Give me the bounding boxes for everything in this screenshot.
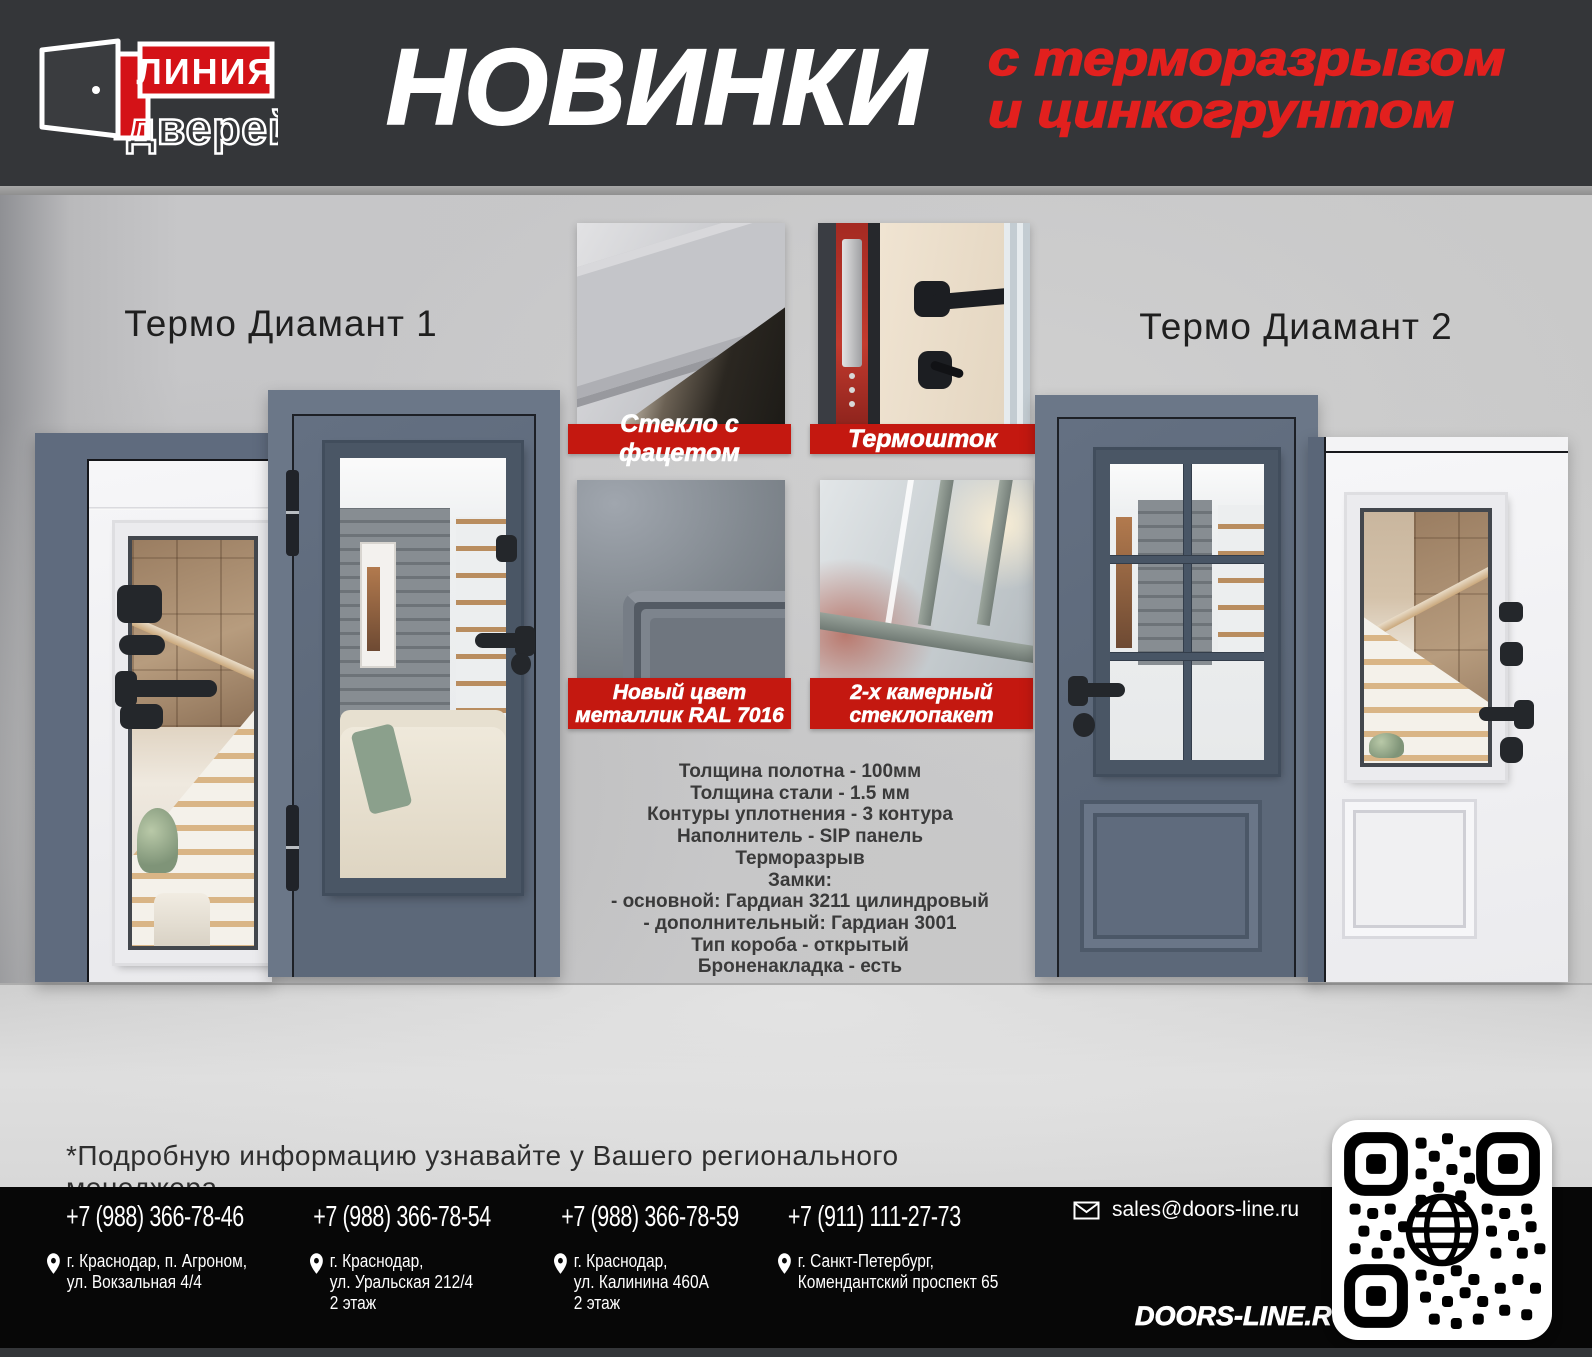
contact-column-2: +7 (988) 366-78-54 г. Краснодар, ул. Ура…	[282, 1201, 522, 1314]
phone-number: +7 (988) 366-78-46	[59, 1201, 251, 1234]
company-logo: ЛИНИЯ дверей	[34, 22, 278, 164]
door-window	[1347, 495, 1505, 780]
door-thumbturn	[1500, 642, 1523, 666]
plant	[1369, 733, 1404, 758]
email-address: sales@doors-line.ru	[1112, 1198, 1299, 1222]
panel-molding-corner	[623, 591, 785, 678]
bottom-strip	[0, 1348, 1592, 1357]
spec-line: Наполнитель - SIP панель	[575, 826, 1025, 848]
poster-title: НОВИНКИ	[386, 24, 1006, 149]
address: г. Санкт-Петербург, Комендантский проспе…	[798, 1251, 999, 1293]
door-edge-panel	[880, 223, 1004, 425]
address-line: ул. Уральская 212/4	[330, 1272, 473, 1293]
open-door-icon: ЛИНИЯ дверей	[34, 22, 278, 164]
globe-icon	[1409, 1197, 1475, 1263]
feature-banner-beveled-glass: Стекло с фацетом	[568, 424, 791, 454]
shelving	[1218, 505, 1264, 659]
door-promo-poster: ЛИНИЯ дверей НОВИНКИ с терморазрывом и ц…	[0, 0, 1592, 1357]
white-door-leaf	[1326, 451, 1568, 982]
address-line: ул. Калинина 460А	[574, 1272, 709, 1293]
door-hinge-top	[286, 470, 299, 556]
location-pin-icon	[778, 1253, 791, 1274]
window-glass-interior	[1110, 464, 1264, 760]
spec-line: Тип короба - открытый	[575, 935, 1025, 957]
address-line: Комендантский проспект 65	[798, 1272, 999, 1293]
feature-photo-thermo-rod	[818, 223, 1030, 425]
banner-text-line2: металлик RAL 7016	[568, 704, 791, 727]
door-handle-rosette	[1514, 700, 1534, 729]
header: ЛИНИЯ дверей НОВИНКИ с терморазрывом и ц…	[0, 0, 1592, 186]
banner-text: Стекло с фацетом	[568, 410, 791, 468]
door-handle-rosette	[515, 626, 535, 656]
specifications-list: Толщина полотна - 100мм Толщина стали - …	[575, 761, 1025, 978]
glazing-bar-1	[918, 480, 957, 626]
feature-photo-beveled-glass	[577, 223, 785, 424]
logo-text-dverey: дверей	[127, 102, 278, 154]
door-jamb	[1308, 437, 1326, 982]
door-handle-rosette	[115, 671, 137, 707]
location-pin-icon	[554, 1253, 567, 1274]
door-thumbturn	[119, 635, 165, 655]
spec-line: Контуры уплотнения - 3 контура	[575, 804, 1025, 826]
door-photo-diamant1-white	[35, 433, 272, 982]
contact-column-4: +7 (911) 111-27-73 г. Санкт-Петербург, К…	[758, 1201, 988, 1293]
door-cylinder	[511, 653, 531, 675]
address-line: ул. Вокзальная 4/4	[67, 1272, 247, 1293]
wall-art-paint	[367, 567, 380, 651]
door-raised-panel	[1080, 800, 1262, 952]
glazing-bar-horizontal-1	[1110, 556, 1264, 563]
logo-text-liniya: ЛИНИЯ	[137, 51, 276, 92]
door-gap	[868, 223, 880, 425]
spec-line: Толщина стали - 1.5 мм	[575, 783, 1025, 805]
spec-line: Толщина полотна - 100мм	[575, 761, 1025, 783]
subtitle-line-1: с терморазрывом	[988, 34, 1505, 86]
address-line: 2 этаж	[330, 1293, 473, 1314]
banner-text-line1: Новый цвет	[568, 681, 791, 704]
door-thumbturn	[496, 535, 517, 562]
window-glass-staircase	[1360, 508, 1492, 767]
phone-number: +7 (988) 366-78-54	[313, 1201, 491, 1234]
website-url: DOORS-LINE.RU	[1135, 1301, 1351, 1332]
banner-text: Термошток	[810, 425, 1035, 454]
banner-text-line2: стеклопакет	[810, 704, 1033, 727]
address: г. Краснодар, ул. Уральская 212/4 2 этаж	[330, 1251, 473, 1314]
door-photo-diamant2-white	[1308, 437, 1568, 982]
hanging-figure	[1116, 517, 1131, 647]
address: г. Краснодар, п. Агроном, ул. Вокзальная…	[67, 1251, 247, 1293]
address-line: г. Краснодар, п. Агроном,	[67, 1251, 247, 1272]
spec-line: - основной: Гардиан 3211 цилиндровый	[575, 891, 1025, 913]
window-glass-livingroom	[340, 458, 506, 878]
qr-code-with-globe-icon	[1332, 1120, 1552, 1340]
door-cylinder-cover	[120, 704, 163, 729]
glazing-bar-horizontal-2	[1110, 653, 1264, 660]
side-glass	[1004, 223, 1030, 425]
pouf	[154, 893, 210, 946]
qr-code	[1332, 1120, 1552, 1340]
glass-glint	[883, 480, 917, 638]
spec-line: Терморазрыв	[575, 848, 1025, 870]
door-edge	[818, 223, 836, 425]
spec-line: Броненакладка - есть	[575, 956, 1025, 978]
contact-column-3: +7 (988) 366-78-59 г. Краснодар, ул. Кал…	[530, 1201, 770, 1314]
address-line: г. Краснодар,	[574, 1251, 709, 1272]
door-raised-panel	[1342, 799, 1477, 939]
feature-banner-double-glazing: 2-х камерный стеклопакет	[810, 678, 1033, 729]
brick-wall	[1138, 500, 1212, 666]
feature-banner-ral7016: Новый цвет металлик RAL 7016	[568, 678, 791, 729]
door-lock-cover	[1499, 602, 1523, 622]
address: г. Краснодар, ул. Калинина 460А 2 этаж	[574, 1251, 709, 1314]
door-handle-rosette	[1068, 676, 1088, 706]
poster-subtitle: с терморазрывом и цинкогрунтом	[988, 34, 1505, 138]
lock-plate	[842, 239, 862, 367]
phone-number: +7 (988) 366-78-59	[561, 1201, 739, 1234]
subtitle-line-2: и цинкогрунтом	[988, 86, 1505, 138]
glazing-bar-vertical	[1184, 464, 1191, 760]
door-window	[325, 443, 521, 893]
white-door-leaf	[87, 459, 272, 982]
envelope-icon	[1073, 1201, 1100, 1220]
spec-line: - дополнительный: Гардиан 3001	[575, 913, 1025, 935]
door-photo-diamant1-dark	[268, 390, 560, 977]
door-top-groove	[89, 507, 272, 510]
door-cylinder-cover	[1500, 737, 1523, 763]
phone-number: +7 (911) 111-27-73	[788, 1201, 958, 1234]
lock-bolts	[849, 373, 855, 379]
door-hinge-bottom	[286, 805, 299, 891]
contact-column-1: +7 (988) 366-78-46 г. Краснодар, п. Агро…	[25, 1201, 285, 1293]
product-title-2: Термо Диамант 2	[1106, 306, 1486, 348]
door-lock-cover	[117, 585, 162, 623]
glazing-bar-2	[977, 480, 1016, 626]
spec-line: Замки:	[575, 870, 1025, 892]
door-thumbturn	[1073, 713, 1095, 737]
location-pin-icon	[310, 1253, 323, 1274]
feature-photo-ral7016	[577, 480, 785, 678]
feature-banner-thermo-rod: Термошток	[810, 424, 1035, 454]
plant	[137, 808, 178, 873]
banner-text-line1: 2-х камерный	[810, 681, 1033, 704]
email-block: sales@doors-line.ru	[1073, 1198, 1299, 1222]
address-line: г. Санкт-Петербург,	[798, 1251, 999, 1272]
header-divider-strip	[0, 186, 1592, 195]
door-photo-diamant2-dark	[1035, 395, 1318, 977]
door-grid-window	[1096, 450, 1278, 774]
address-line: г. Краснодар,	[330, 1251, 473, 1272]
location-pin-icon	[47, 1253, 60, 1274]
address-line: 2 этаж	[574, 1293, 709, 1314]
product-title-1: Термо Диамант 1	[91, 303, 471, 345]
feature-photo-double-glazing	[820, 480, 1033, 678]
